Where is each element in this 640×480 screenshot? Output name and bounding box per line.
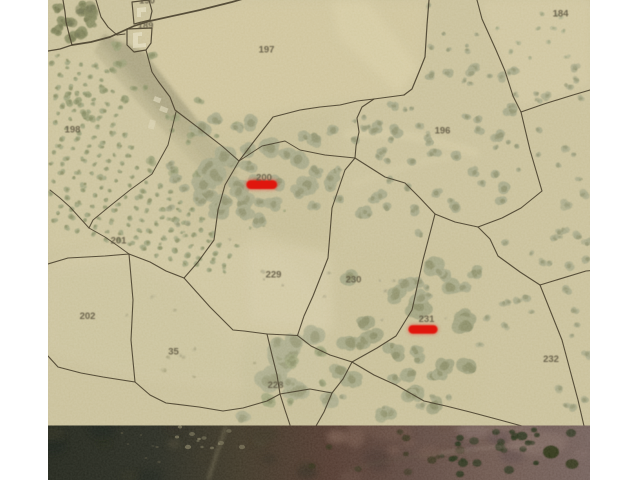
svg-text:189: 189 (138, 20, 154, 31)
svg-text:231: 231 (419, 314, 436, 325)
svg-text:35: 35 (168, 346, 179, 357)
svg-text:232: 232 (543, 354, 559, 365)
svg-text:184: 184 (553, 8, 570, 19)
svg-text:230: 230 (346, 274, 362, 285)
svg-text:201: 201 (111, 235, 128, 246)
svg-text:228: 228 (268, 380, 284, 391)
svg-text:197: 197 (259, 44, 275, 55)
svg-text:196: 196 (435, 125, 451, 136)
svg-text:198: 198 (65, 124, 81, 135)
svg-text:229: 229 (266, 269, 282, 280)
svg-text:202: 202 (80, 311, 96, 322)
svg-text:200: 200 (256, 172, 272, 183)
svg-text:190: 190 (139, 0, 155, 7)
